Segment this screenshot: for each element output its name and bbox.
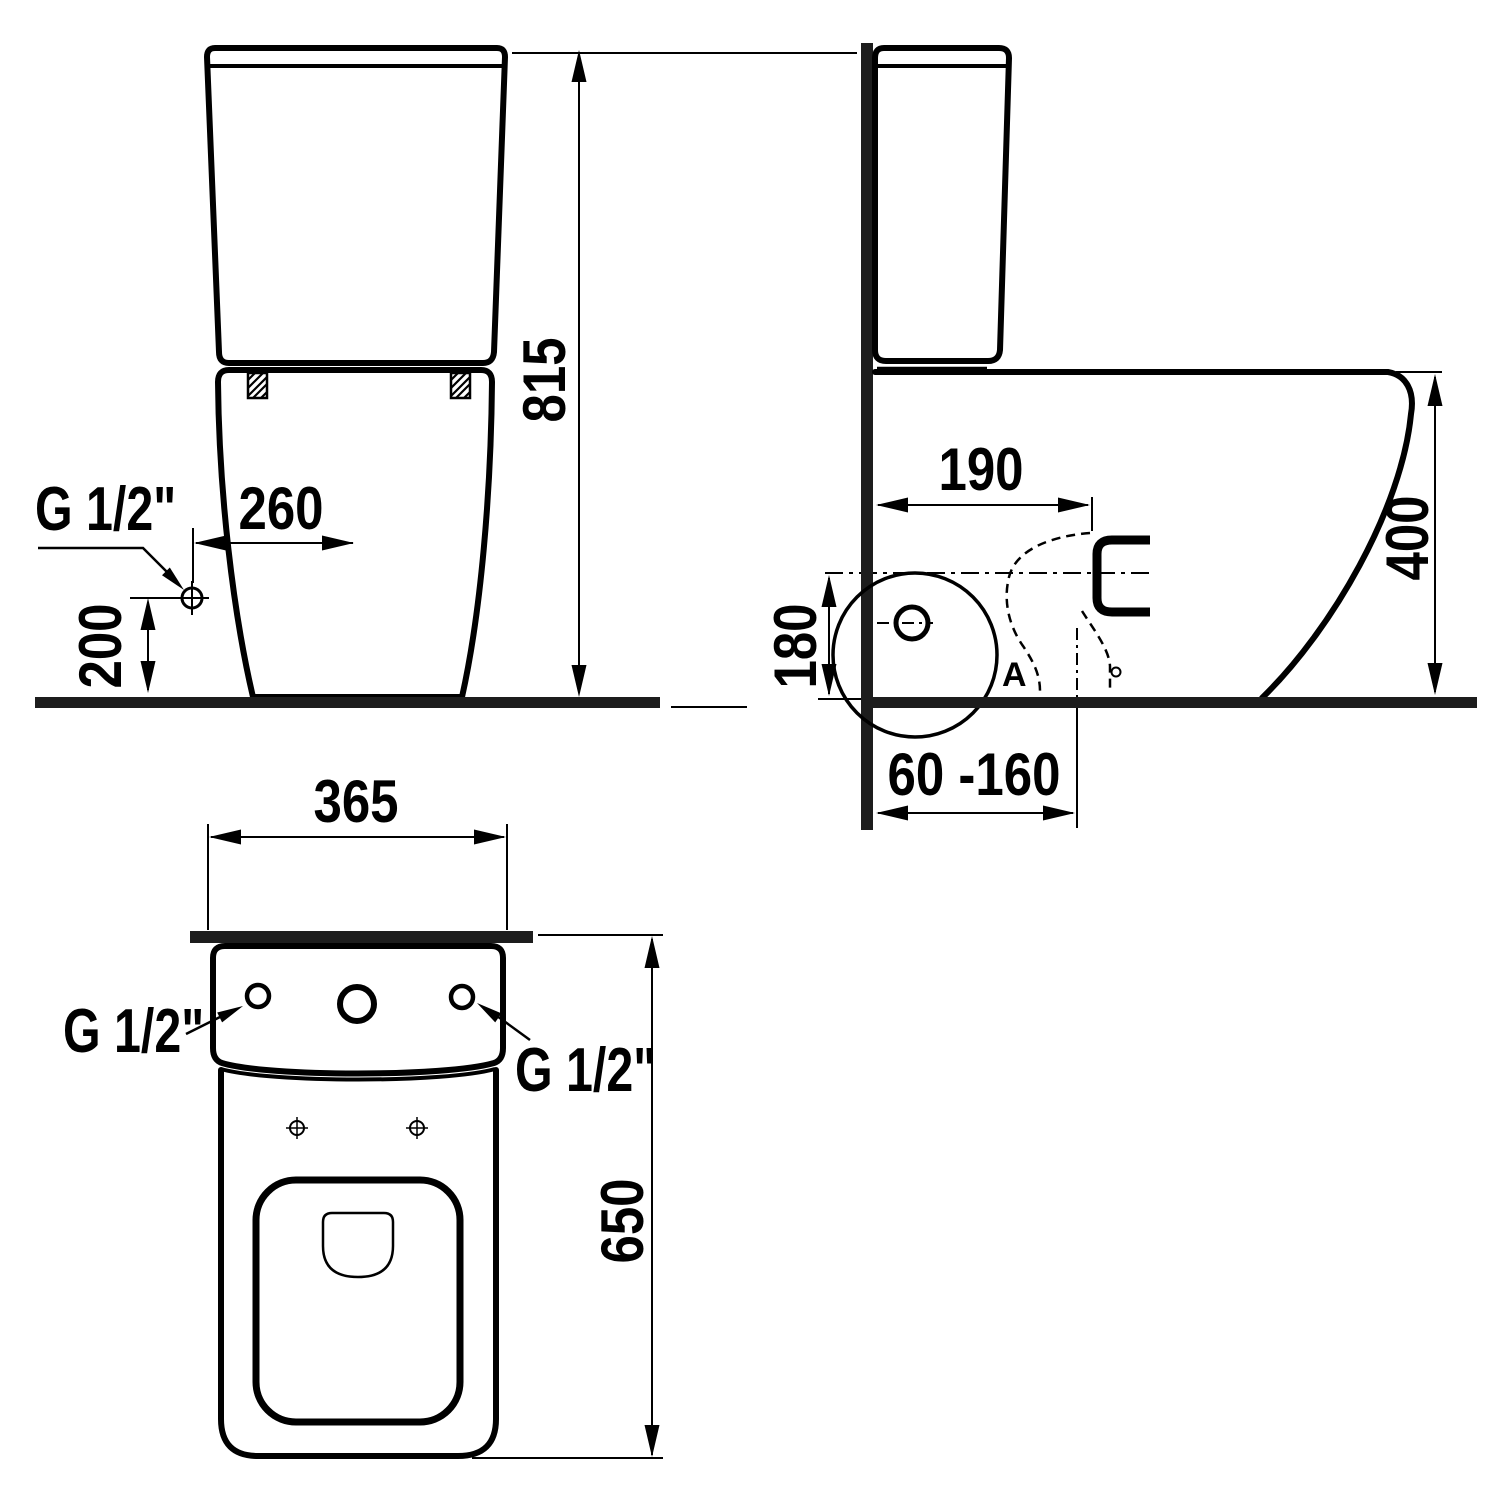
dim-180: 180 (762, 575, 836, 696)
dim-400-arrow-up (1428, 374, 1443, 406)
dim-815-arrow-down (572, 665, 587, 697)
plan-wall-bar (190, 931, 533, 943)
front-view: 815 260 200 G 1/2" (35, 48, 857, 708)
front-inlet-thread-label: G 1/2" (35, 474, 176, 543)
dim-365-extensions (208, 824, 507, 930)
dim-815-label: 815 (511, 337, 578, 422)
dim-190-arrow-left (876, 498, 908, 513)
dim-365-arrow-right (474, 830, 506, 845)
front-cistern-outline (207, 48, 505, 363)
dim-650-label: 650 (589, 1178, 656, 1263)
trap-hidden-curve-2 (1082, 611, 1110, 691)
front-inlet-leader-line (38, 548, 172, 577)
dim-180-label: 180 (762, 603, 829, 688)
dim-260-label: 260 (238, 475, 323, 542)
plan-inner-rim (256, 1180, 460, 1422)
side-view: A 190 400 180 (762, 43, 1477, 830)
dim-815-arrow-up (572, 50, 587, 82)
plan-inlet-thread-label-left: G 1/2" (63, 996, 204, 1065)
dim-400-arrow-down (1428, 663, 1443, 695)
side-bowl-profile (875, 372, 1412, 698)
front-inlet: G 1/2" (35, 474, 209, 615)
plan-seat-hole-right (406, 1117, 428, 1139)
technical-drawing-page: 815 260 200 G 1/2" (0, 0, 1500, 1500)
dim-190-label: 190 (938, 436, 1023, 503)
dim-180-arrow-up (822, 575, 837, 607)
dim-60-160: 60 -160 (876, 741, 1075, 820)
dim-815: 815 (511, 50, 857, 697)
dim-190: 190 (876, 436, 1092, 531)
side-floor-bar (862, 697, 1477, 708)
dim-650-arrow-down (645, 1425, 660, 1457)
plan-seat-hole-left (286, 1117, 308, 1139)
plan-seat-hole-right-cross (406, 1117, 428, 1139)
detail-circle-A (833, 573, 997, 737)
dim-365-arrow-left (209, 830, 241, 845)
plan-flush-button-circle (340, 987, 374, 1021)
plan-seat-hole-left-cross (286, 1117, 308, 1139)
side-cistern-outline (875, 48, 1009, 361)
plan-inlet-hole-left (247, 985, 269, 1007)
plan-view: 365 650 G 1/2" G 1/2" (63, 768, 663, 1458)
trap-small-circle (1112, 668, 1121, 677)
dim-400-label: 400 (1374, 495, 1441, 580)
dim-200-arrow-up (141, 598, 156, 630)
dim-200-arrow-down (141, 661, 156, 693)
flush-connector-bracket (1097, 540, 1150, 612)
dim-260-arrow-left (194, 536, 226, 551)
plan-inlet-thread-label-right: G 1/2" (515, 1035, 656, 1104)
detail-label-A: A (1002, 656, 1027, 694)
dim-60-160-label: 60 -160 (888, 741, 1061, 808)
plan-inlet-hole-right (451, 986, 473, 1008)
dim-650-arrow-up (645, 936, 660, 968)
dim-365: 365 (208, 768, 507, 930)
dim-200: 200 (67, 598, 176, 693)
dim-365-label: 365 (313, 768, 398, 835)
side-wall-bar (861, 43, 873, 830)
dim-200-label: 200 (67, 603, 134, 688)
front-floor-bar (35, 697, 660, 708)
toilet-dimension-drawing: 815 260 200 G 1/2" (0, 0, 1500, 1500)
dim-190-arrow-right (1058, 498, 1090, 513)
